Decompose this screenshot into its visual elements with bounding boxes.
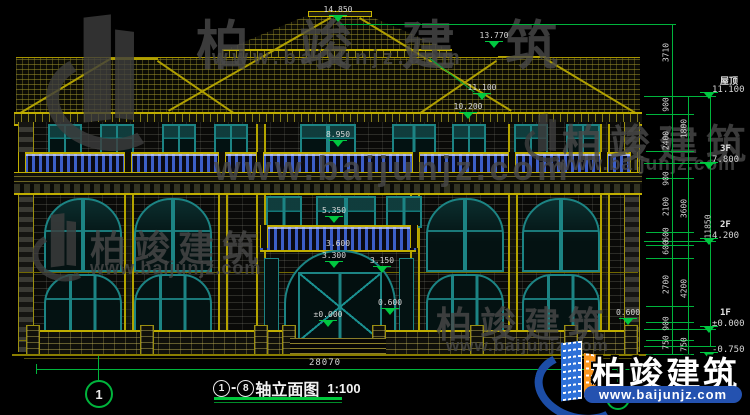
- title-dash: -: [231, 379, 236, 397]
- entrance-steps: [290, 338, 386, 354]
- elevation-marker-triangle: [329, 217, 339, 223]
- dimension-value: 4200: [680, 269, 689, 309]
- window-3f: [162, 124, 196, 154]
- watermark-building: [67, 221, 76, 266]
- watermark-logo-icon: [526, 114, 564, 159]
- leader-line: [340, 24, 676, 25]
- title-underline: [214, 397, 342, 400]
- watermark-building: [84, 14, 111, 122]
- balustrade-post: [124, 152, 132, 172]
- watermark-building: [549, 119, 556, 151]
- watermark-logo-icon: [50, 16, 155, 142]
- watermark-url: www.baijunjz.com: [212, 47, 465, 70]
- elevation-value: 11.100: [452, 83, 512, 92]
- watermark-url-large: www.baijunjz.com: [214, 150, 571, 189]
- watermark-url: www.baijunjz.com: [90, 258, 261, 279]
- elevation-value: 3.600: [308, 239, 368, 248]
- axis-line: [98, 356, 99, 380]
- elevation-marker-triangle: [333, 16, 343, 22]
- dimension-value: 11850: [704, 207, 713, 247]
- elevation-marker-triangle: [323, 321, 333, 327]
- watermark-building: [51, 213, 65, 267]
- dimension-value: 3710: [662, 33, 671, 73]
- entrance-door: [298, 272, 382, 342]
- brand-logo-building-blue: [561, 341, 582, 402]
- title-scale: 1:100: [327, 381, 360, 396]
- dimension-value: 600: [662, 228, 671, 268]
- floor-elevation: 11.100: [712, 85, 745, 95]
- elevation-value: ±0.000: [298, 310, 358, 319]
- elevation-value: 14.850: [308, 5, 368, 14]
- axis-bubble-1: 1: [85, 380, 113, 408]
- floor-label: 3F: [720, 144, 731, 154]
- arched-window-2f: [426, 198, 504, 272]
- elevation-marker-triangle: [377, 267, 387, 273]
- elevation-value: 0.600: [360, 298, 420, 307]
- fence-post: [26, 325, 40, 356]
- fence-post: [254, 325, 268, 356]
- floor-label: 2F: [720, 220, 731, 230]
- cad-elevation-drawing: 28070 1 8 1 - 8 轴立面图 1:100 柏竣建筑 www.baij…: [0, 0, 750, 415]
- dimension-value: 3600: [680, 189, 689, 229]
- axis-number: 1: [95, 387, 102, 402]
- watermark-logo-icon: [34, 214, 87, 277]
- elevation-marker-triangle: [333, 141, 343, 147]
- balcony-post: [410, 225, 418, 248]
- watermark-building: [538, 113, 548, 152]
- window-2f-center: [266, 196, 302, 228]
- elevation-value: 5.350: [304, 206, 364, 215]
- dimension-value: 1800: [680, 109, 689, 149]
- dimension-value: 900: [662, 85, 671, 125]
- elevation-value: 3.150: [352, 256, 412, 265]
- title-axis-from: 1: [213, 380, 230, 397]
- window-2f-center: [386, 196, 422, 228]
- overall-dimension-value: 28070: [295, 358, 355, 368]
- balustrade-post: [18, 152, 26, 172]
- elevation-marker-triangle: [489, 42, 499, 48]
- title-axis-to: 8: [237, 380, 254, 397]
- fence-wall: [26, 330, 292, 356]
- elevation-marker-triangle: [463, 113, 473, 119]
- dimension-value: 2700: [662, 265, 671, 305]
- elevation-marker-triangle: [477, 94, 487, 100]
- arched-window-2f: [522, 198, 600, 272]
- floor-elevation: 7.800: [712, 155, 739, 165]
- elevation-value: 10.200: [438, 102, 498, 111]
- elevation-value: 0.600: [598, 308, 658, 317]
- dimension-end-tick: [36, 364, 37, 374]
- extension-line: [672, 24, 673, 354]
- elevation-value: 8.950: [308, 130, 368, 139]
- elevation-marker-triangle: [623, 319, 633, 325]
- brand-logo-url: www.baijunjz.com: [584, 386, 742, 403]
- dimension-value: 2400: [662, 121, 671, 161]
- floor-elevation: 4.200: [712, 231, 739, 241]
- elevation-marker-triangle: [385, 309, 395, 315]
- floor-label: 1F: [720, 308, 731, 318]
- fence-post: [140, 325, 154, 356]
- title-underline-2: [214, 402, 342, 403]
- watermark-building: [115, 30, 134, 121]
- elevation-marker-triangle: [329, 262, 339, 268]
- elevation-value: 13.770: [464, 31, 524, 40]
- floor-elevation: ±0.000: [712, 319, 745, 329]
